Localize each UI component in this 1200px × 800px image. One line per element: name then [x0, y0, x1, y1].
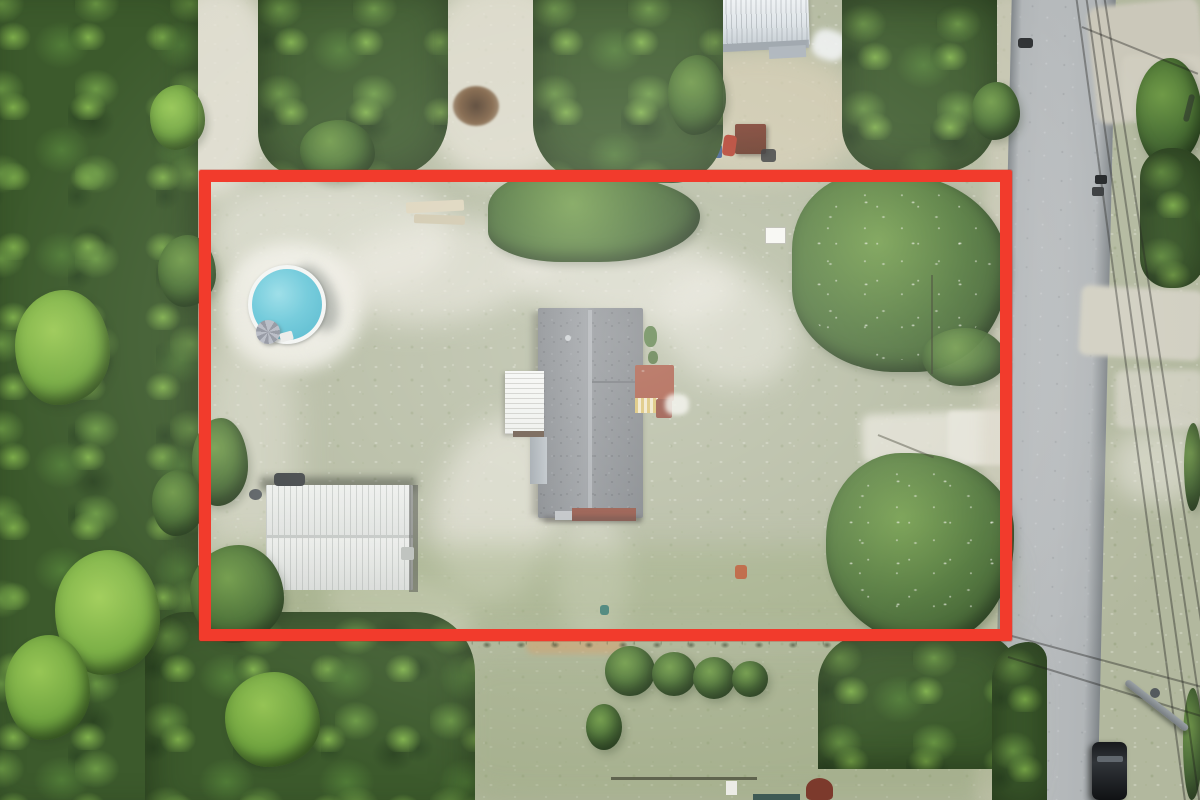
property-boundary-annotation [199, 170, 1012, 641]
screenshot-root [0, 0, 1200, 800]
aerial-photo [0, 0, 1200, 800]
